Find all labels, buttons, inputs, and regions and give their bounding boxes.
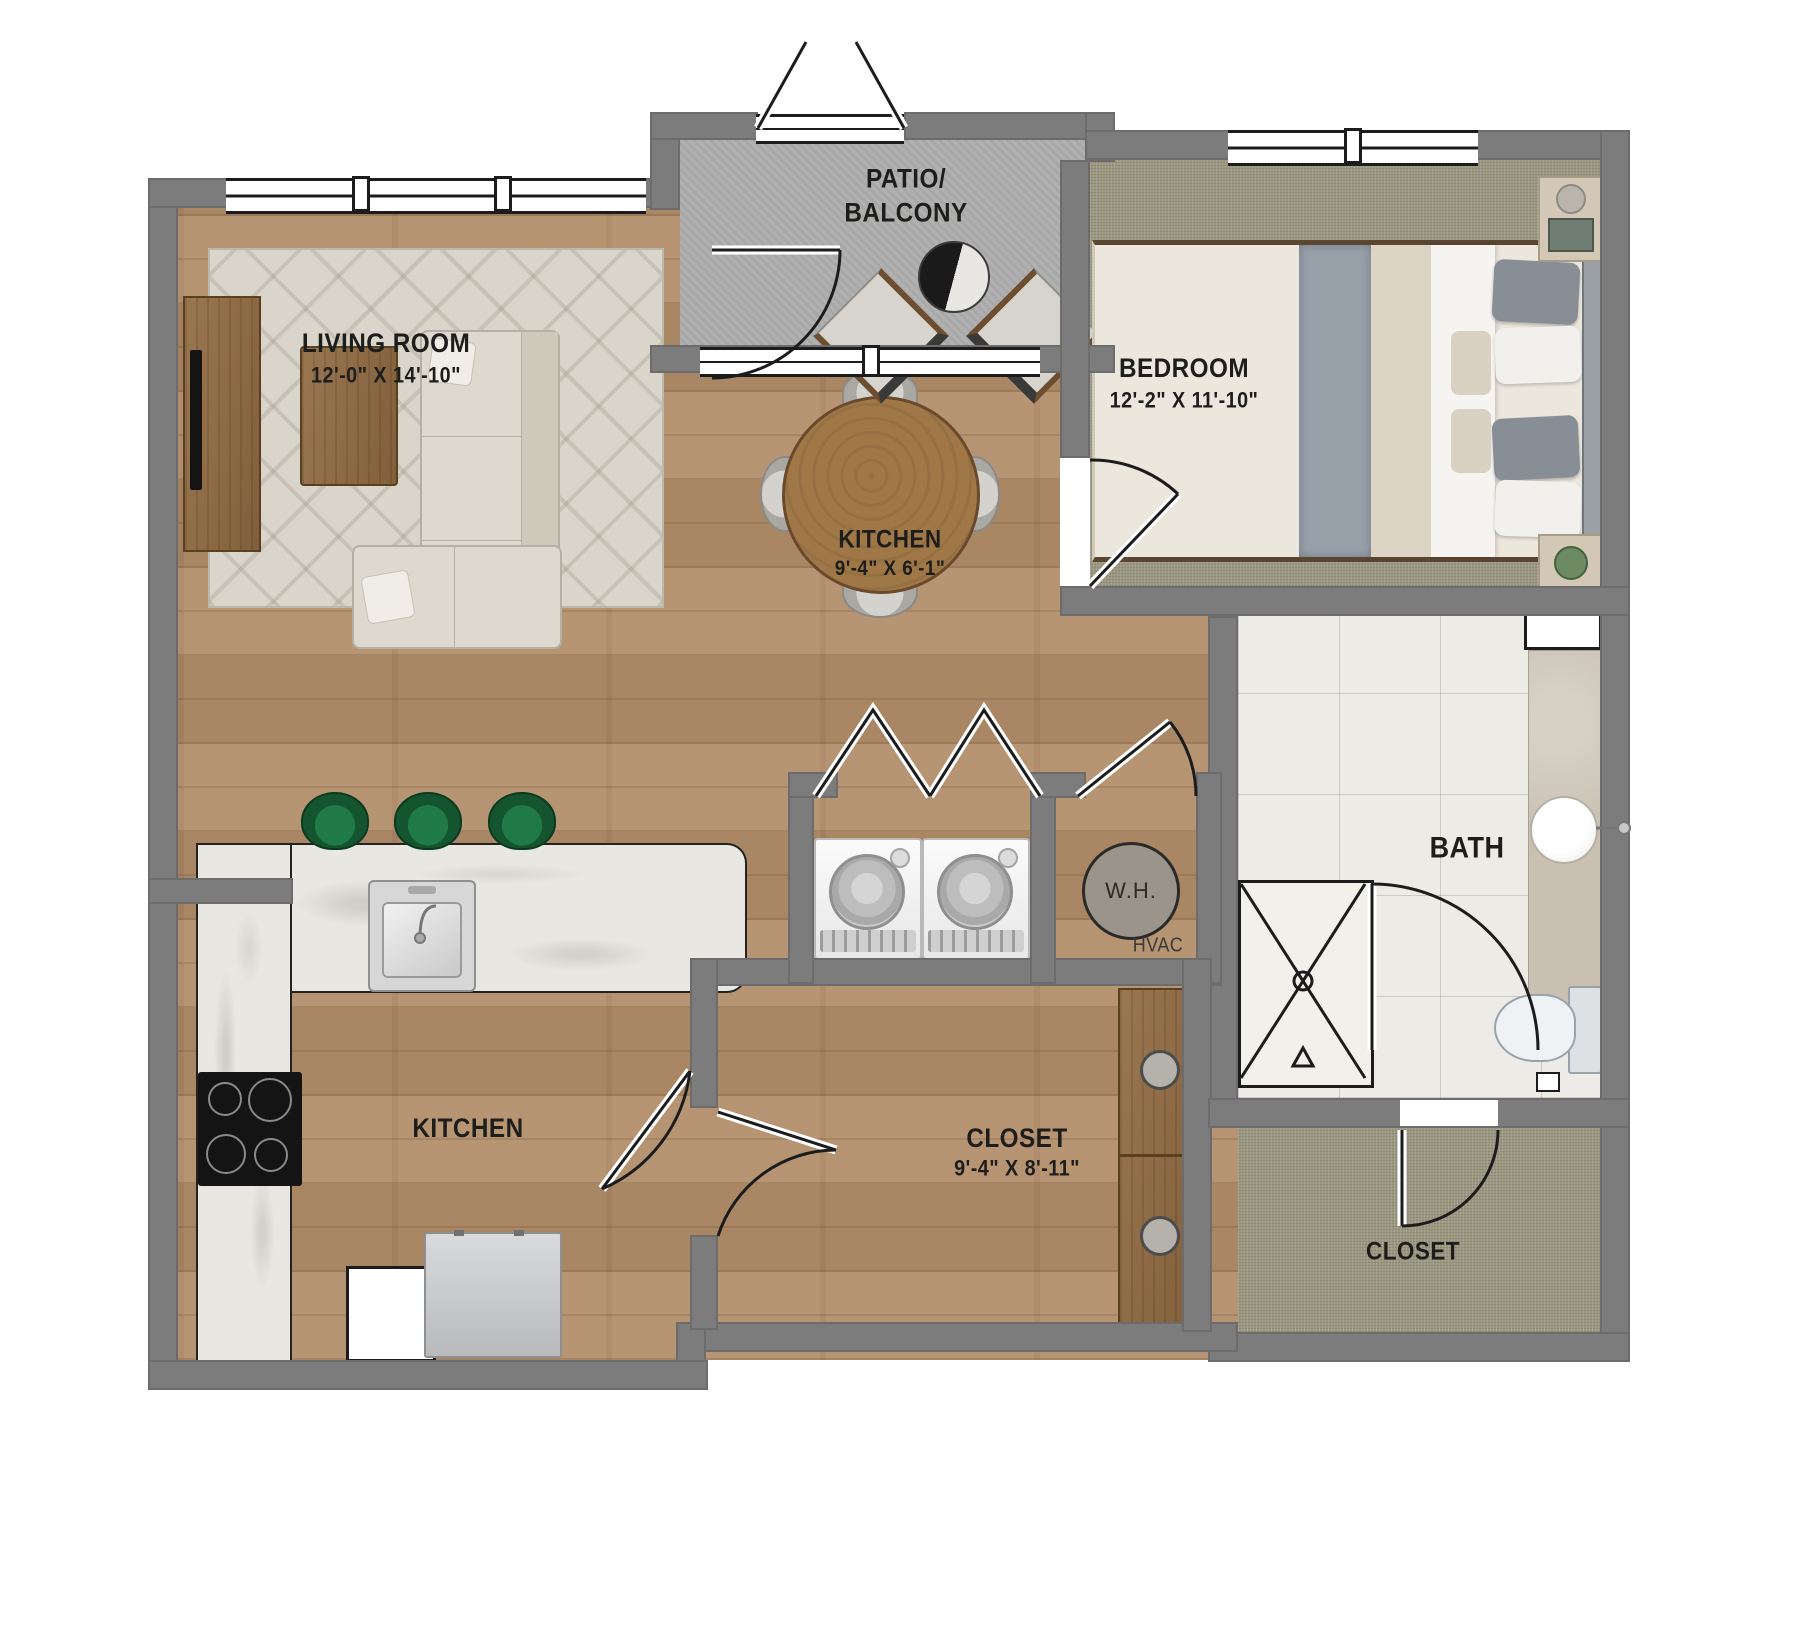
decor-books [1548,218,1594,252]
chaise-pillow [360,569,416,625]
wall [1600,130,1630,1362]
bed-pillow [1491,415,1580,481]
toilet-bowl [1494,994,1576,1062]
closet-secondary-label: CLOSET [1366,1236,1460,1267]
wall [148,178,178,1390]
bath-label: BATH [1430,829,1505,867]
bar-stool [301,792,369,850]
sofa-chaise [352,545,562,649]
kitchen-label: KITCHEN [412,1112,523,1146]
chaise-cushion-line [454,547,455,647]
sofa-cushion-line [422,540,522,541]
water-heater-label: W.H. [1105,878,1157,904]
dryer-controls [928,930,1024,952]
window-mullion [862,345,880,377]
patio-label: PATIO/ BALCONY [844,162,967,230]
floor-plan: W.H. [0,0,1800,1631]
refrigerator [424,1232,562,1358]
bedroom-label: BEDROOM [1119,352,1249,386]
burner [254,1138,288,1172]
bath-floor-drain [1536,1072,1560,1092]
washer [814,838,922,960]
bed-throw-blanket [1299,245,1371,557]
dryer [922,838,1030,960]
fridge-handle [514,1230,524,1236]
living-room-window [226,178,646,214]
hvac-label: HVAC [1133,934,1183,959]
living-room-dims: 12'-0" X 14'-10" [311,361,461,389]
wall [788,772,838,798]
wall [676,1322,1238,1352]
closet-main-label: CLOSET [966,1122,1067,1156]
shower [1238,880,1374,1088]
dining-label: KITCHEN [838,524,941,555]
kitchen-sink [368,880,476,992]
patio-table [918,241,990,313]
door-gap [1400,1100,1498,1126]
decor-tray [1556,184,1586,214]
clothes-rod-hook [1140,1050,1180,1090]
living-room-label: LIVING ROOM [302,327,470,361]
fridge-handle [454,1230,464,1236]
bed-pillow [1494,326,1582,385]
bed-accent-pillow [1451,409,1491,473]
cooktop [198,1072,302,1186]
wall [1030,772,1056,984]
wall [788,772,814,984]
wall [700,958,1222,986]
wall [148,878,293,904]
dining-dims: 9'-4" X 6'-1" [835,556,946,582]
wall [1060,586,1630,616]
bar-stool [394,792,462,850]
wall [690,1235,718,1330]
burner [248,1078,292,1122]
burner [208,1082,242,1116]
wall [690,958,718,1108]
clothes-rod-hook [1140,1216,1180,1256]
nightstand [1538,176,1604,262]
patio-french-door-sill [756,114,904,144]
bed-sheet-beige [1371,245,1431,557]
bed-accent-pillow [1451,331,1491,395]
bar-stool [488,792,556,850]
closet-secondary-floor [1238,1128,1600,1332]
door-gap [1060,458,1090,586]
dryer-knob [998,848,1018,868]
wall [650,112,758,140]
wall [904,112,1115,140]
base-cabinet [346,1266,436,1362]
wall [1196,772,1222,984]
wall [1182,958,1212,1332]
tv-icon [190,350,202,490]
sink-faucet [408,886,436,894]
sofa-cushion-line [422,436,522,437]
wall [148,1360,708,1390]
window-mullion [352,176,370,212]
window-mullion [494,176,512,212]
water-heater-icon: W.H. [1082,842,1180,940]
burner [206,1134,246,1174]
wall [1208,1332,1630,1362]
window-mullion [1344,128,1362,164]
bed-sheet-white [1431,245,1495,557]
sink-basin [382,902,462,978]
wall [1060,160,1090,458]
bath-sink [1530,796,1598,864]
closet-main-dims: 9'-4" X 8'-11" [954,1154,1080,1182]
washer-knob [890,848,910,868]
washer-controls [820,930,916,952]
bed-pillow [1494,480,1582,539]
bedroom-dims: 12'-2" X 11'-10" [1110,386,1259,414]
wall [1030,772,1086,798]
bed-pillow [1491,259,1580,325]
decor-plant [1554,546,1588,580]
